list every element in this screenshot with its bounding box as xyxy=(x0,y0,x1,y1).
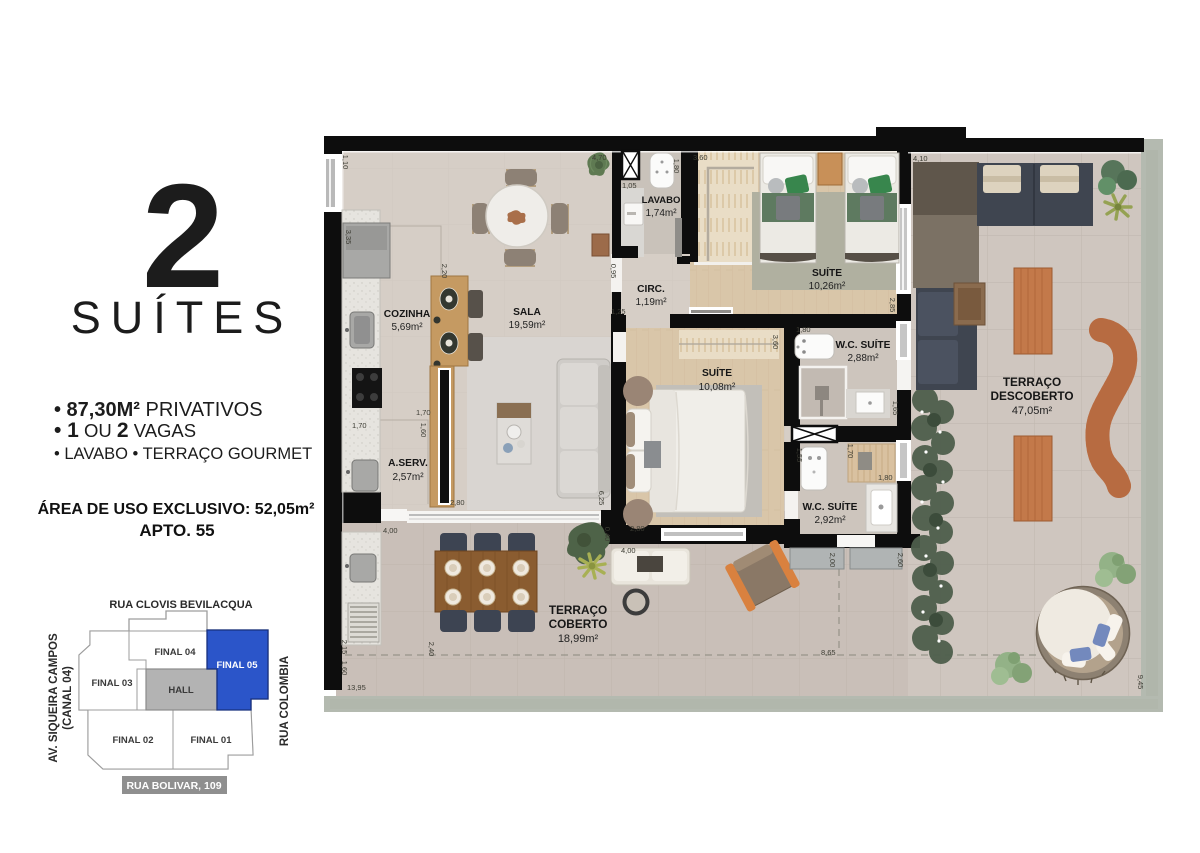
svg-text:W.C. SUÍTE: W.C. SUÍTE xyxy=(836,338,891,351)
svg-text:• LAVABO • TERRAÇO GOURMET: • LAVABO • TERRAÇO GOURMET xyxy=(54,445,312,463)
svg-text:2,92m²: 2,92m² xyxy=(814,515,846,526)
svg-text:1,80: 1,80 xyxy=(878,473,893,482)
svg-text:5,69m²: 5,69m² xyxy=(391,322,423,333)
svg-text:1,25: 1,25 xyxy=(611,307,626,316)
svg-text:W.C. SUÍTE: W.C. SUÍTE xyxy=(803,500,858,513)
svg-text:9,45: 9,45 xyxy=(1136,675,1145,690)
svg-text:RUA BOLIVAR, 109: RUA BOLIVAR, 109 xyxy=(126,780,221,792)
svg-text:1,65: 1,65 xyxy=(891,401,900,416)
svg-text:DESCOBERTO: DESCOBERTO xyxy=(990,389,1073,403)
svg-text:3,60: 3,60 xyxy=(693,153,708,162)
svg-text:2,40: 2,40 xyxy=(427,642,436,657)
svg-text:4,70: 4,70 xyxy=(592,153,607,162)
svg-text:A.SERV.: A.SERV. xyxy=(388,458,428,469)
svg-text:1,60: 1,60 xyxy=(340,661,349,676)
svg-text:RUA COLOMBIA: RUA COLOMBIA xyxy=(279,656,291,746)
svg-text:10,08m²: 10,08m² xyxy=(699,382,736,393)
svg-text:1,70: 1,70 xyxy=(846,444,855,459)
svg-text:CIRC.: CIRC. xyxy=(637,284,665,295)
svg-text:2,85: 2,85 xyxy=(888,298,897,313)
svg-text:3,35: 3,35 xyxy=(344,230,353,245)
svg-text:FINAL 01: FINAL 01 xyxy=(190,735,232,746)
svg-text:0,40: 0,40 xyxy=(603,527,612,542)
svg-text:2,80: 2,80 xyxy=(630,524,645,533)
svg-text:RUA CLOVIS BEVILACQUA: RUA CLOVIS BEVILACQUA xyxy=(109,599,252,611)
svg-text:13,95: 13,95 xyxy=(347,683,366,692)
svg-text:1,55: 1,55 xyxy=(795,448,804,463)
svg-text:2,20: 2,20 xyxy=(440,264,449,279)
svg-text:47,05m²: 47,05m² xyxy=(1012,405,1053,417)
svg-text:SUÍTES: SUÍTES xyxy=(71,292,294,343)
svg-text:1,70: 1,70 xyxy=(416,408,431,417)
svg-text:FINAL 03: FINAL 03 xyxy=(91,678,132,689)
svg-text:10,26m²: 10,26m² xyxy=(809,281,846,292)
svg-text:2,60: 2,60 xyxy=(896,553,905,568)
svg-text:4,00: 4,00 xyxy=(621,546,636,555)
svg-text:HALL: HALL xyxy=(168,685,194,696)
svg-text:TERRAÇO: TERRAÇO xyxy=(549,603,607,617)
svg-text:2,88m²: 2,88m² xyxy=(847,353,879,364)
svg-text:FINAL 04: FINAL 04 xyxy=(154,647,196,658)
svg-text:6,25: 6,25 xyxy=(597,491,606,506)
svg-text:1,80: 1,80 xyxy=(672,159,681,174)
svg-text:1,05: 1,05 xyxy=(622,181,637,190)
svg-text:FINAL 02: FINAL 02 xyxy=(112,735,153,746)
svg-text:0,95: 0,95 xyxy=(609,264,618,279)
svg-text:4,10: 4,10 xyxy=(913,154,928,163)
svg-text:AV. SIQUEIRA CAMPOS: AV. SIQUEIRA CAMPOS xyxy=(48,633,60,763)
svg-text:1,60: 1,60 xyxy=(419,423,428,438)
svg-text:1,80: 1,80 xyxy=(796,325,811,334)
svg-text:• 87,30M² PRIVATIVOS: • 87,30M² PRIVATIVOS xyxy=(54,399,263,421)
svg-text:3,60: 3,60 xyxy=(771,335,780,350)
svg-text:SUÍTE: SUÍTE xyxy=(702,366,732,379)
svg-text:SALA: SALA xyxy=(513,307,541,318)
svg-text:2,80: 2,80 xyxy=(450,498,465,507)
svg-text:19,59m²: 19,59m² xyxy=(509,320,546,331)
svg-text:2,15: 2,15 xyxy=(340,640,349,655)
svg-text:1,74m²: 1,74m² xyxy=(645,208,677,219)
svg-text:TERRAÇO: TERRAÇO xyxy=(1003,375,1061,389)
svg-text:ÁREA DE USO EXCLUSIVO: 52,05m²: ÁREA DE USO EXCLUSIVO: 52,05m² xyxy=(38,499,315,518)
svg-text:1,70: 1,70 xyxy=(352,421,367,430)
svg-text:• 1 OU 2 VAGAS: • 1 OU 2 VAGAS xyxy=(54,419,196,442)
svg-text:COBERTO: COBERTO xyxy=(549,617,608,631)
svg-text:18,99m²: 18,99m² xyxy=(558,633,599,645)
svg-text:2,00: 2,00 xyxy=(828,553,837,568)
svg-text:2,57m²: 2,57m² xyxy=(392,472,424,483)
svg-text:1,19m²: 1,19m² xyxy=(635,297,667,308)
svg-text:LAVABO: LAVABO xyxy=(642,195,681,206)
svg-text:4,00: 4,00 xyxy=(383,526,398,535)
svg-text:FINAL 05: FINAL 05 xyxy=(216,660,258,671)
svg-text:(CANAL 04): (CANAL 04) xyxy=(62,666,74,730)
svg-text:8,65: 8,65 xyxy=(821,648,836,657)
svg-text:1,10: 1,10 xyxy=(341,155,350,170)
svg-text:COZINHA: COZINHA xyxy=(384,309,431,320)
svg-text:APTO. 55: APTO. 55 xyxy=(139,521,214,540)
svg-text:SUÍTE: SUÍTE xyxy=(812,266,842,279)
